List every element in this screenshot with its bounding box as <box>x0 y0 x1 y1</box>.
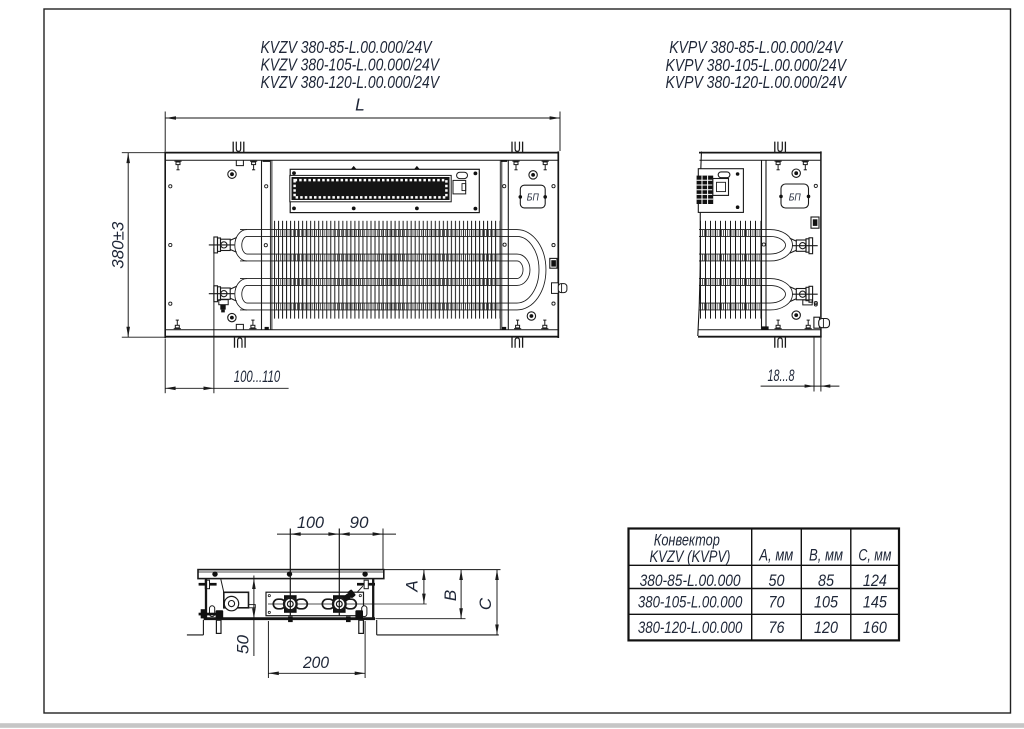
svg-text:50: 50 <box>769 571 785 590</box>
svg-text:124: 124 <box>863 571 887 590</box>
svg-text:380-120-L.00.000: 380-120-L.00.000 <box>638 618 743 637</box>
svg-text:B: B <box>441 590 460 601</box>
svg-text:145: 145 <box>863 593 887 612</box>
svg-text:100...110: 100...110 <box>234 367 281 386</box>
svg-text:105: 105 <box>814 593 838 612</box>
svg-text:БП: БП <box>527 193 540 204</box>
svg-text:76: 76 <box>769 618 785 637</box>
svg-text:С, мм: С, мм <box>858 546 891 565</box>
svg-text:50: 50 <box>234 634 253 654</box>
svg-text:L: L <box>355 95 365 115</box>
svg-text:380-105-L.00.000: 380-105-L.00.000 <box>638 593 743 612</box>
svg-text:120: 120 <box>814 618 838 637</box>
svg-text:380-85-L.00.000: 380-85-L.00.000 <box>640 571 741 590</box>
svg-text:А, мм: А, мм <box>759 546 794 565</box>
svg-text:KVZV 380-120-L.00.000/24V: KVZV 380-120-L.00.000/24V <box>261 72 441 92</box>
svg-text:В, мм: В, мм <box>809 546 843 565</box>
svg-text:160: 160 <box>863 618 887 637</box>
svg-text:БП: БП <box>789 192 802 203</box>
svg-text:18...8: 18...8 <box>768 366 795 385</box>
svg-text:200: 200 <box>302 653 329 672</box>
svg-text:C: C <box>476 597 495 610</box>
svg-text:380±3: 380±3 <box>108 221 127 269</box>
svg-text:KVPV 380-120-L.00.000/24V: KVPV 380-120-L.00.000/24V <box>665 72 847 92</box>
svg-text:KVZV (KVPV): KVZV (KVPV) <box>650 547 731 566</box>
svg-text:KVPV 380-85-L.00.000/24V: KVPV 380-85-L.00.000/24V <box>669 37 843 57</box>
svg-text:100: 100 <box>297 513 325 532</box>
svg-text:A: A <box>403 580 422 592</box>
svg-text:85: 85 <box>818 571 834 590</box>
svg-text:90: 90 <box>350 513 370 532</box>
svg-text:70: 70 <box>769 593 785 612</box>
